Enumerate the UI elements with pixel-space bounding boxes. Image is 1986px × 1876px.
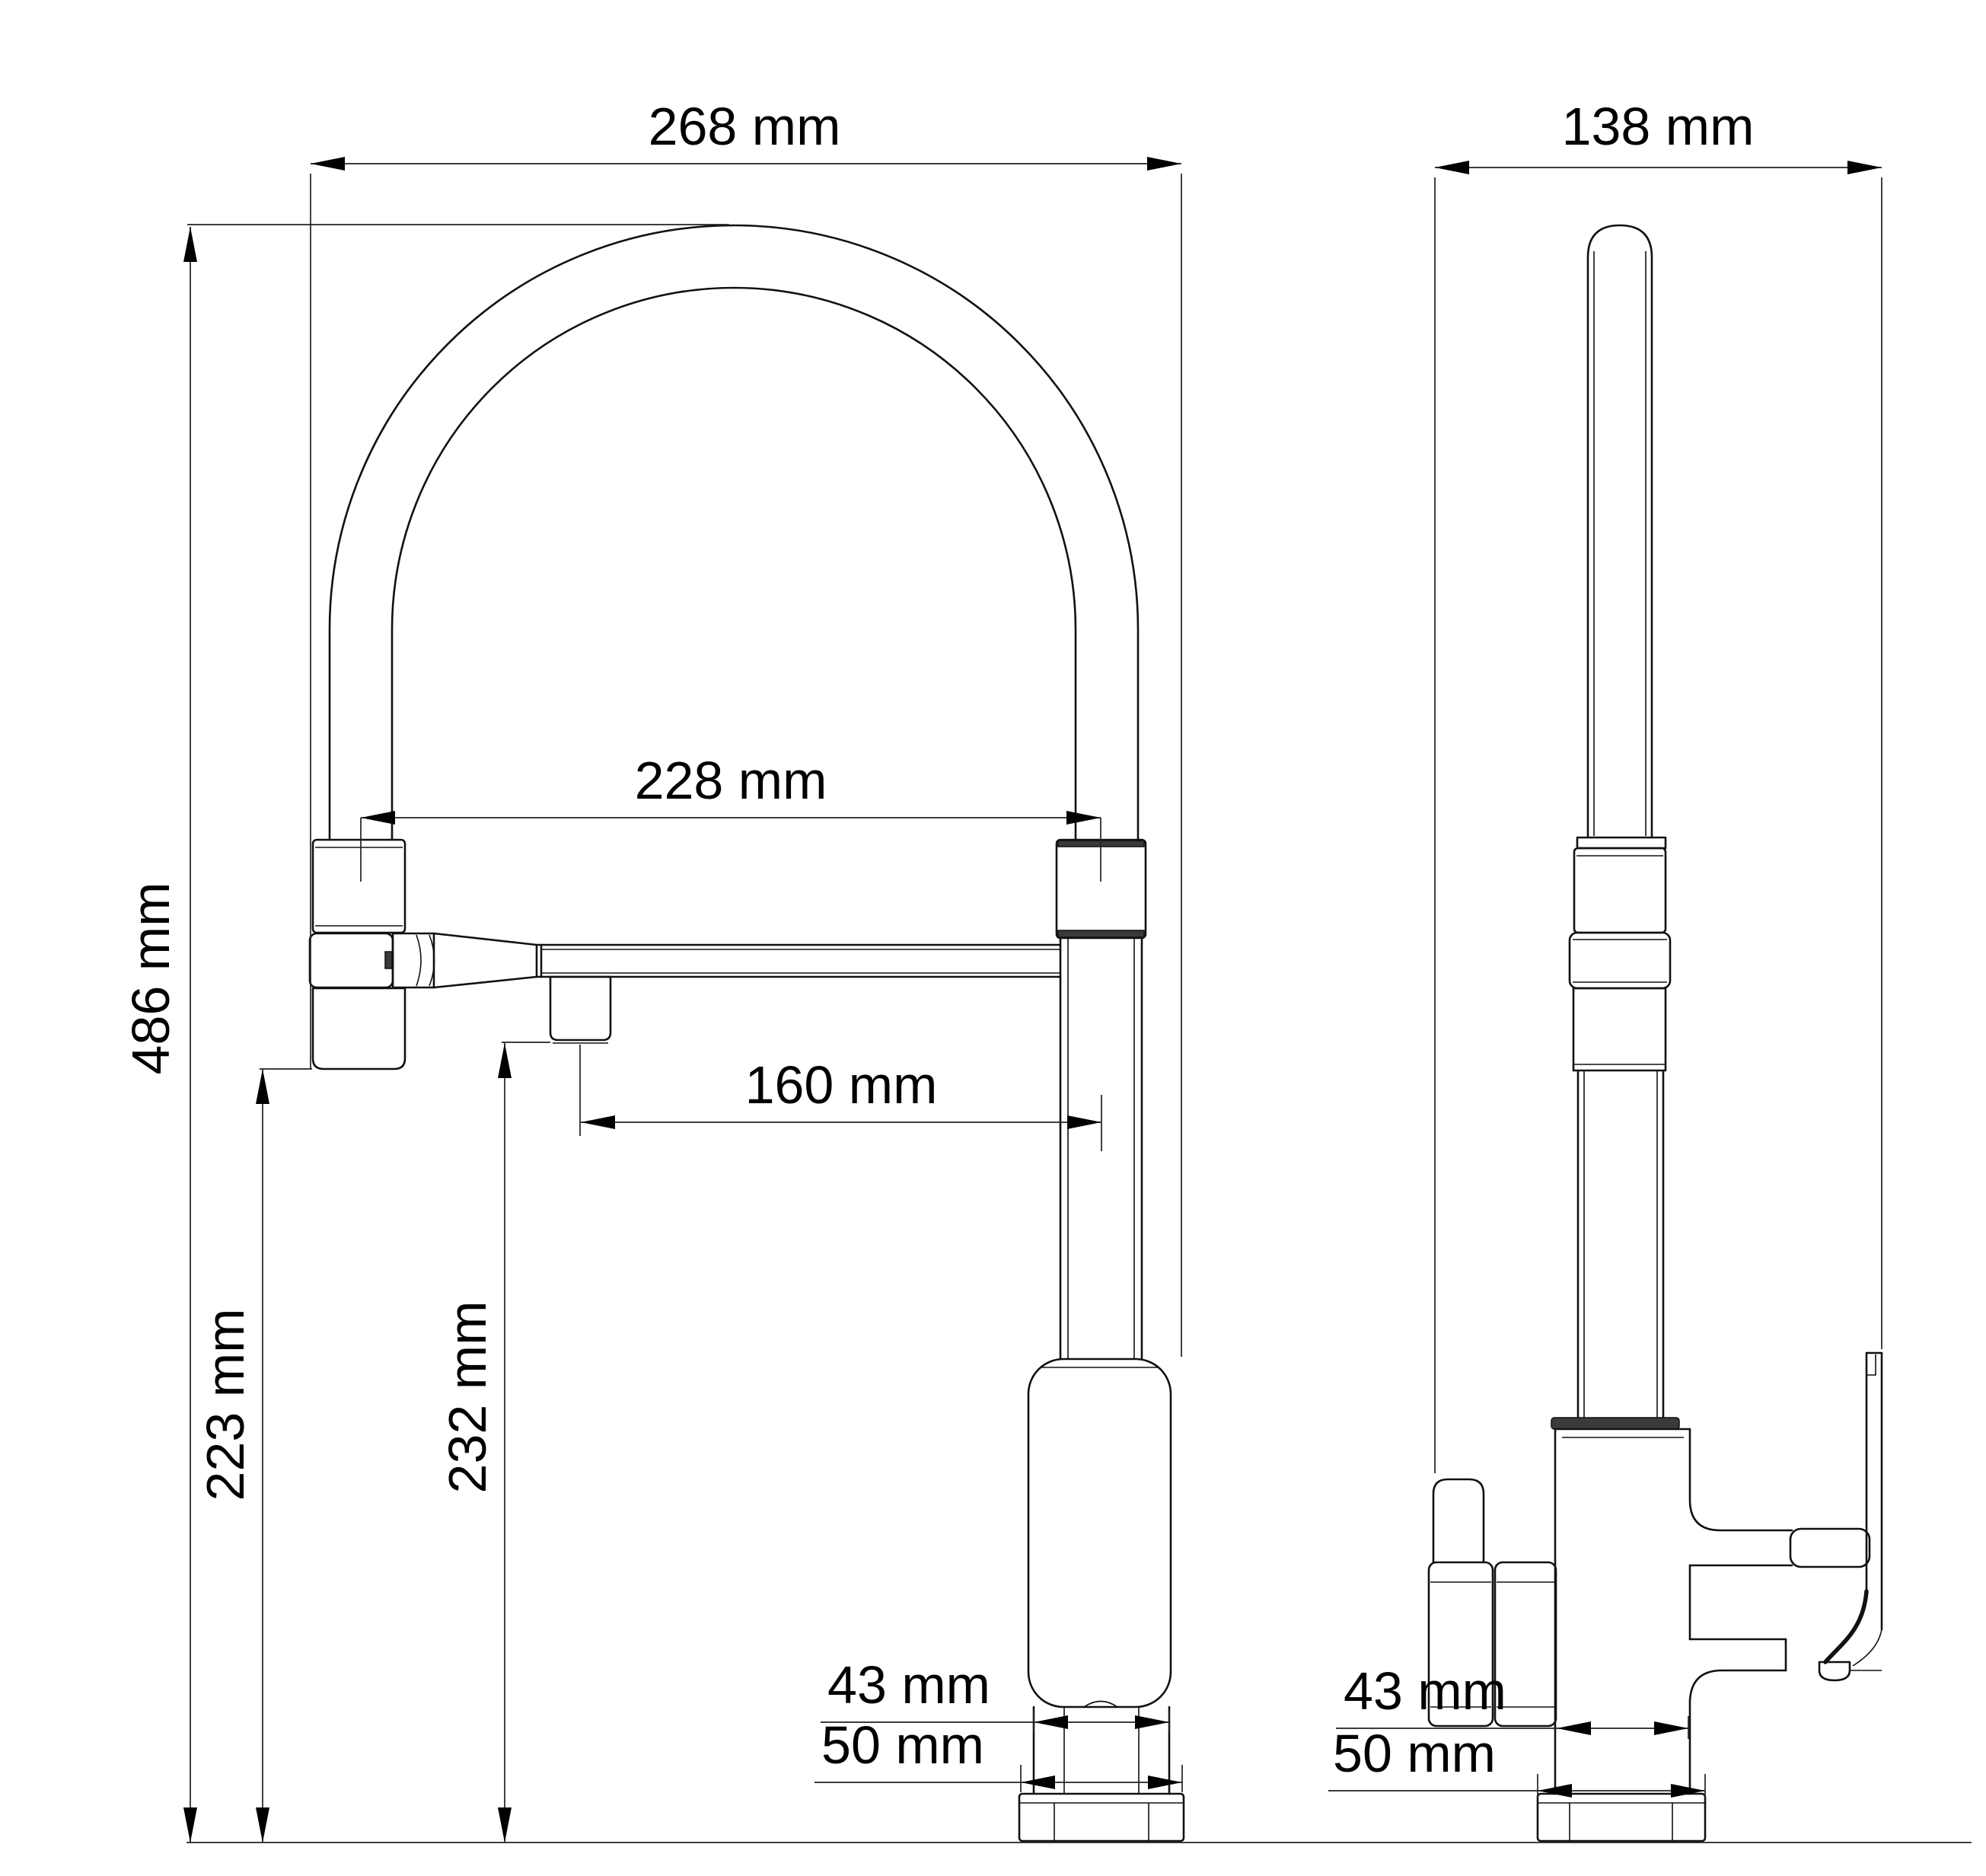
dimension-label: 50 mm xyxy=(821,1715,984,1775)
dimension-label: 268 mm xyxy=(649,97,841,156)
spray-head-clip xyxy=(385,952,392,968)
dimension-label: 232 mm xyxy=(438,1301,497,1494)
dimension-label: 50 mm xyxy=(1333,1724,1496,1783)
dimension-label: 43 mm xyxy=(827,1655,990,1715)
dimension-base-width-front: 50 mm xyxy=(814,1715,1182,1792)
handle-neck xyxy=(1825,1591,1866,1662)
spray-head-lower-barrel xyxy=(313,988,405,1069)
dimension-label: 138 mm xyxy=(1562,97,1755,156)
front-view: 268 mm 228 mm 160 mm 486 mm xyxy=(121,97,1184,1842)
side-view: 138 mm 43 mm 50 mm xyxy=(1328,97,1882,1841)
faucet-body-front xyxy=(1028,1359,1171,1707)
spray-head xyxy=(310,933,435,1069)
handle-end-cap xyxy=(1819,1662,1850,1680)
spout-tube-side xyxy=(1588,225,1652,837)
hose-arch-outer xyxy=(330,225,1138,840)
dimension-overall-depth: 138 mm xyxy=(1435,97,1882,1473)
dimension-label: 486 mm xyxy=(121,882,180,1075)
dimension-overall-width: 268 mm xyxy=(311,97,1181,1357)
dimension-spray-head-clearance: 223 mm xyxy=(196,1069,312,1842)
faucet-dimension-drawing: 268 mm 228 mm 160 mm 486 mm xyxy=(0,0,1986,1876)
hose-connector-side xyxy=(1570,837,1670,1070)
dimension-label: 43 mm xyxy=(1344,1661,1506,1721)
dimension-overall-height: 486 mm xyxy=(121,225,729,1842)
dimension-label: 223 mm xyxy=(196,1309,255,1501)
aerator-outlet xyxy=(550,977,610,1043)
joint-ring xyxy=(1551,1418,1679,1429)
dimension-label: 228 mm xyxy=(635,751,827,810)
base-plate-side xyxy=(1538,1794,1705,1841)
left-hose-connector xyxy=(313,840,405,933)
technical-drawing-page: 268 mm 228 mm 160 mm 486 mm xyxy=(0,0,1986,1876)
riser-tube-side xyxy=(1551,1070,1679,1429)
dimension-base-width-side: 50 mm xyxy=(1328,1724,1705,1798)
dimension-spout-outlet-height: 232 mm xyxy=(438,1042,550,1842)
dimension-hose-span: 228 mm xyxy=(361,751,1101,882)
handle-lever xyxy=(1790,1353,1882,1680)
base-plate-front xyxy=(1019,1794,1184,1841)
dimension-label: 160 mm xyxy=(745,1055,938,1115)
spout-arm xyxy=(434,933,1060,987)
faucet-body-side xyxy=(1555,1429,1882,1794)
dimension-spout-reach: 160 mm xyxy=(580,1045,1101,1151)
